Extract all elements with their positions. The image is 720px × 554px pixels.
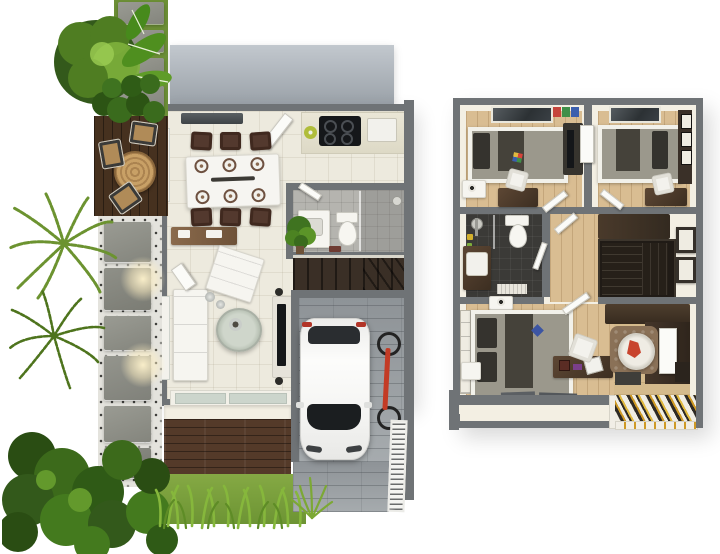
stove-burner [324, 133, 336, 145]
dining-chair [220, 132, 241, 150]
gallery-frame [681, 114, 692, 129]
stair-flight-lower [642, 243, 668, 295]
uf-shower-glass [493, 215, 495, 249]
stove-burner [324, 120, 337, 133]
dining-chair [249, 207, 271, 226]
outdoor-chair [98, 138, 126, 170]
accent-pillow-blue [531, 324, 544, 337]
uf-shower-pipe [475, 218, 478, 236]
stove-burner [341, 133, 353, 145]
nook-dark-cabinet [675, 362, 690, 382]
car-taillight [356, 322, 366, 327]
place-setting [251, 188, 265, 202]
green-plate [304, 126, 317, 139]
gf-toilet-bowl [338, 221, 357, 246]
master-bed [471, 310, 573, 400]
master-nightstand-foot [461, 362, 481, 380]
bed-toy [512, 152, 523, 163]
uf-lower-wall-right [598, 297, 696, 304]
shower-head [392, 196, 402, 206]
bed-pillow [473, 133, 490, 169]
floorplan-scene [0, 0, 720, 554]
bed-pillow [477, 318, 497, 348]
uf-bottom-wall [453, 395, 613, 405]
sideboard-decor [206, 230, 222, 238]
bed-runner [505, 314, 533, 388]
decor-pot [205, 292, 215, 302]
driveway-plant-icon [288, 466, 336, 524]
palm-plants-icon [6, 186, 128, 402]
car-mirror [364, 402, 372, 408]
stair-closet [598, 214, 670, 239]
ac-unit [181, 113, 243, 124]
bedroom-right-window [609, 106, 661, 123]
car-windshield [307, 404, 361, 430]
place-setting [194, 159, 208, 173]
bedroom-left-window [491, 106, 553, 123]
table-decor [229, 318, 242, 331]
sofa [173, 289, 208, 381]
hall-wall-frame [676, 257, 696, 283]
bicycle-frame [382, 348, 390, 410]
upper-floor-plan [449, 96, 705, 432]
uf-bottom-fascia [455, 405, 611, 414]
garage-left-wall [291, 290, 299, 462]
bedroom-left-tv [567, 130, 574, 168]
hedge-icon [92, 62, 168, 126]
dining-table [185, 153, 281, 208]
bed-pillow [652, 131, 668, 169]
desk-chair [651, 172, 675, 196]
dining-chair [249, 131, 271, 150]
nightstand-lamp [468, 184, 476, 192]
louvered-pergola [615, 395, 696, 421]
shower-glass [359, 191, 361, 251]
master-wardrobe [460, 310, 471, 394]
place-setting [223, 189, 237, 203]
uf-vanity-sink [466, 252, 488, 276]
tv-screen [277, 304, 286, 366]
car-rear-window [308, 326, 360, 344]
uf-toilet-bowl [509, 224, 527, 248]
roof-slab [170, 45, 394, 105]
car-taillight [302, 322, 312, 327]
books-green [562, 107, 570, 117]
nightstand-lamp [497, 298, 505, 306]
gallery-frame [681, 132, 692, 147]
bicycle [374, 332, 400, 428]
car [300, 318, 368, 458]
coffee-table [216, 308, 262, 352]
dresser-box [559, 360, 570, 371]
dresser-device [573, 364, 582, 370]
speaker [275, 288, 283, 296]
decor-pot [216, 300, 225, 309]
window-bottom-pane [229, 393, 287, 404]
nook-shelf-cabinet [605, 304, 690, 324]
entry-gate [387, 420, 407, 513]
sideboard-decor [178, 230, 190, 238]
stove-burner [341, 120, 354, 133]
closet-door-panel [580, 125, 594, 163]
uf-right-wall-edge [696, 98, 703, 428]
place-setting [250, 157, 264, 171]
hall-wall-frame [676, 227, 696, 253]
toiletry-yellow [467, 234, 473, 240]
place-setting [195, 190, 209, 204]
books-blue [571, 107, 579, 117]
gf-towel [329, 246, 341, 252]
window-bottom-pane [175, 393, 226, 404]
gf-stair-winders [363, 258, 405, 290]
uf-bottom-stub [449, 390, 459, 430]
dining-chair [191, 207, 213, 226]
kitchen-sink [367, 118, 397, 142]
pergola-fascia [615, 421, 698, 430]
bed-runner [616, 129, 640, 171]
uf-bath-mat [497, 284, 527, 294]
dining-chair [191, 131, 213, 150]
books-red [553, 107, 561, 117]
stair-flight-upper [602, 243, 642, 295]
uf-stairwell [598, 239, 676, 303]
table-runner [211, 176, 255, 182]
uf-mid-wall [460, 207, 696, 214]
car-mirror [296, 402, 304, 408]
place-setting [222, 158, 236, 172]
nook-floor-mat [615, 372, 641, 385]
garage-top-wall [291, 290, 412, 298]
bed-runner [498, 131, 524, 171]
houseplant-icon [283, 212, 317, 256]
gallery-frame [681, 150, 692, 165]
dining-chair [220, 208, 242, 227]
speaker [275, 377, 283, 385]
